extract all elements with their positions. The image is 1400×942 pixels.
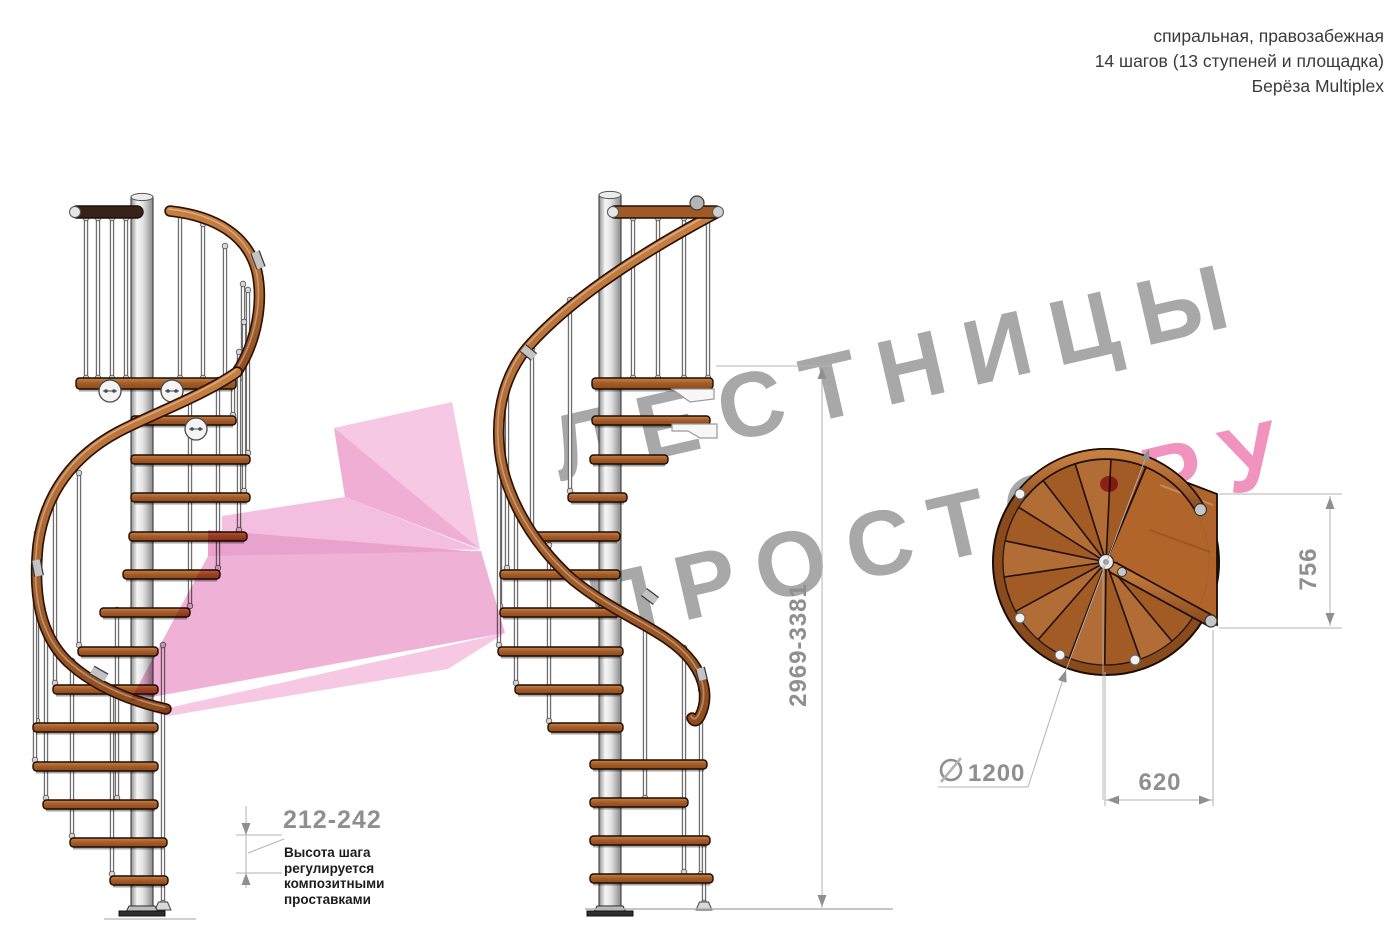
total-height-dimension: 2969-3381 <box>785 583 812 707</box>
step-height-dimension: 212-242 <box>283 806 382 835</box>
tread <box>590 874 713 883</box>
step-height-note: Высота шага регулируется композитными пр… <box>284 845 384 907</box>
rail-sleeve <box>700 668 703 680</box>
drawing-page: ЛЕСТНИЦЫ ПРОСТО.РУ 2969-3381 756 620 120… <box>0 0 1400 942</box>
staircase-technical-drawing: 2969-3381 756 620 1200 <box>0 0 1400 942</box>
rail-end-cap <box>608 207 619 218</box>
baluster-joint <box>241 319 247 325</box>
pole-top-cap <box>599 191 621 198</box>
dimension-arrow <box>242 873 251 885</box>
tread <box>43 800 158 809</box>
tread <box>131 455 250 464</box>
plan-rail-cap <box>1194 504 1206 516</box>
landing-depth-dimension: 756 <box>1295 547 1322 590</box>
tread <box>70 838 167 847</box>
pink-arrow-logo <box>130 402 1118 716</box>
support-disc-bolt <box>112 389 116 393</box>
tread <box>590 836 710 845</box>
plan-baluster-cap <box>1015 489 1025 499</box>
tread <box>515 685 623 694</box>
plan-rail-bar-joint <box>1118 568 1127 577</box>
top-rail-bar <box>71 206 143 218</box>
plan-rail-bar-cap <box>1205 615 1217 627</box>
pole-base-plate <box>587 911 633 916</box>
support-disc-bolt <box>174 389 178 393</box>
tread <box>110 876 168 885</box>
leader-line <box>248 839 284 853</box>
dimension-arrow <box>1107 796 1119 805</box>
support-disc-bolt <box>166 389 170 393</box>
step-bracket <box>672 389 714 402</box>
rail-end-cap <box>70 207 81 218</box>
tread <box>568 493 627 502</box>
tread <box>33 762 158 771</box>
tread <box>590 798 688 807</box>
rail-end-cap <box>713 207 724 218</box>
landing-width-dimension: 620 <box>1138 769 1181 796</box>
plan-baluster-cap <box>1015 613 1025 623</box>
tread <box>548 723 623 732</box>
dimension-arrow <box>1058 669 1070 683</box>
support-disc-bolt <box>104 389 108 393</box>
tread <box>590 455 668 464</box>
tread <box>78 647 158 656</box>
top-rail-bar <box>609 206 722 218</box>
dimension-arrow <box>1326 497 1335 509</box>
baluster-joint <box>245 287 251 293</box>
rail-sleeve <box>644 592 656 601</box>
plan-baluster-cap <box>1055 650 1065 660</box>
pink-dot <box>1100 476 1118 492</box>
pole-base-plate <box>119 911 165 916</box>
landing-tread <box>592 378 713 389</box>
title-line-steps: 14 шагов (13 ступеней и площадка) <box>1095 49 1384 74</box>
leader-line <box>1028 670 1066 787</box>
title-line-type: спиральная, правозабежная <box>1095 24 1384 49</box>
title-block: спиральная, правозабежная 14 шагов (13 с… <box>1095 24 1384 99</box>
baluster-foot <box>155 902 171 910</box>
rail-knob <box>690 196 704 210</box>
tread <box>131 493 250 502</box>
dimension-arrow <box>242 823 251 835</box>
rail-sleeve <box>36 560 39 576</box>
dimension-arrow <box>1326 613 1335 625</box>
tread <box>500 608 620 617</box>
dimension-arrow <box>818 367 827 379</box>
dimension-arrow <box>1199 796 1211 805</box>
tread <box>498 647 623 656</box>
dimension-arrow <box>818 895 827 907</box>
baluster-joint <box>222 243 228 249</box>
title-line-material: Берёза Multiplex <box>1095 74 1384 99</box>
pole-top-cap <box>131 193 153 200</box>
baluster-joint <box>76 470 82 476</box>
side-view-middle-staircase <box>496 191 723 916</box>
tread <box>33 723 158 732</box>
baluster-joint <box>240 281 246 287</box>
support-disc-bolt <box>198 427 202 431</box>
tread <box>590 760 707 769</box>
diameter-dimension: 1200 <box>968 760 1025 787</box>
step-bracket <box>672 424 717 438</box>
plan-baluster-cap <box>1130 655 1140 665</box>
support-disc-bolt <box>190 427 194 431</box>
